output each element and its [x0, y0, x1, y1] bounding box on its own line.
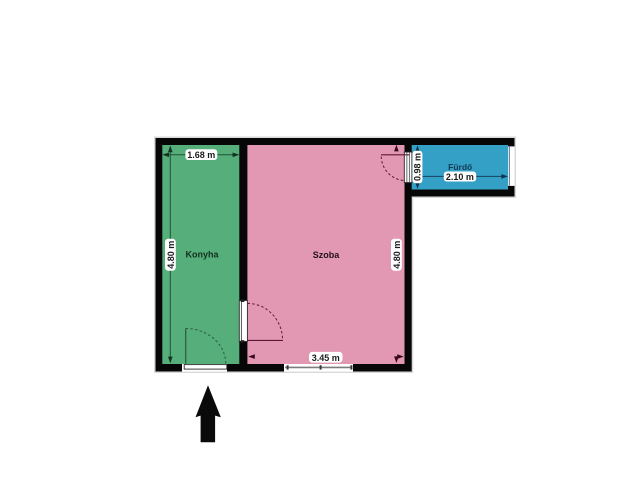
svg-text:1.68 m: 1.68 m — [187, 150, 215, 160]
svg-text:0.98 m: 0.98 m — [413, 153, 423, 181]
svg-text:Szoba: Szoba — [313, 250, 340, 260]
svg-text:Konyha: Konyha — [185, 250, 219, 260]
svg-text:2.10 m: 2.10 m — [446, 172, 474, 182]
svg-text:3.45 m: 3.45 m — [312, 353, 340, 363]
svg-text:Fürdő: Fürdő — [448, 162, 472, 172]
svg-text:4.80 m: 4.80 m — [166, 241, 176, 269]
svg-text:4.80 m: 4.80 m — [392, 241, 402, 269]
